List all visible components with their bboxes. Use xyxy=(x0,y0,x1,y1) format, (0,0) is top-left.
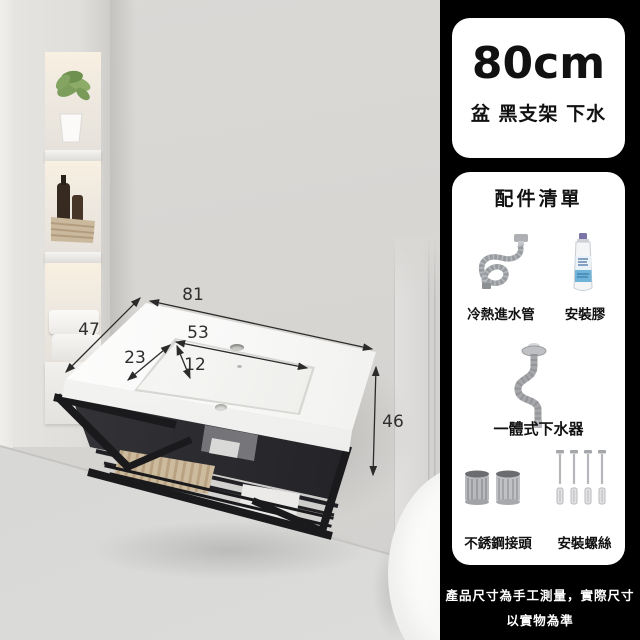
mounting-screws-icon xyxy=(552,444,614,510)
wall-panel-fade xyxy=(394,236,440,296)
dim-basin-width: 53 xyxy=(181,323,215,343)
niche-shelf-board xyxy=(45,252,101,263)
plant-icon xyxy=(45,52,101,150)
size-card: 80cm 盆 黑支架 下水 xyxy=(452,18,625,158)
accessory-label: 一體式下水器 xyxy=(452,418,625,439)
amber-bottles-icon xyxy=(45,161,101,252)
steel-connector-icon xyxy=(464,466,522,508)
info-panel: 80cm 盆 黑支架 下水 配件清單 冷 xyxy=(440,0,640,640)
faucet-dot xyxy=(237,365,242,368)
product-image: 81 47 53 23 12 46 80cm 盆 黑支架 下水 配件清單 xyxy=(0,0,640,640)
bathroom-photo: 81 47 53 23 12 46 xyxy=(0,0,440,640)
faucet-hole xyxy=(230,344,244,351)
wall-edge xyxy=(0,0,13,448)
dim-counter-width: 81 xyxy=(176,285,210,305)
size-label: 80cm xyxy=(452,42,625,86)
accessory-label: 安裝螺絲 xyxy=(544,532,625,552)
accessory-label: 冷熱進水管 xyxy=(454,303,548,323)
disclaimer: 產品尺寸為手工測量，實際尺寸 以實物為準 xyxy=(440,583,640,633)
overflow-hole xyxy=(215,404,227,411)
accessories-title: 配件清單 xyxy=(452,184,625,211)
niche-cell-bottles xyxy=(45,161,101,252)
dim-basin-depth: 23 xyxy=(118,348,152,368)
niche-shelf-board xyxy=(45,150,101,161)
accessory-label: 不銹鋼接頭 xyxy=(452,532,544,552)
disclaimer-line1: 產品尺寸為手工測量，實際尺寸 xyxy=(440,583,640,608)
dim-counter-depth: 47 xyxy=(72,320,106,340)
accessories-card: 配件清單 冷熱進水管 安裝膠 xyxy=(452,172,625,565)
drain-pipe-icon xyxy=(504,338,564,430)
dim-basin-inner-depth: 12 xyxy=(178,355,212,375)
glue-tube-icon xyxy=(568,232,598,294)
variant-label: 盆 黑支架 下水 xyxy=(452,99,625,126)
niche-cell-plant xyxy=(45,52,101,150)
accessory-label: 安裝膠 xyxy=(550,303,620,323)
disclaimer-line2: 以實物為準 xyxy=(440,608,640,633)
dim-frame-height: 46 xyxy=(376,412,410,432)
water-hose-icon xyxy=(472,230,534,294)
